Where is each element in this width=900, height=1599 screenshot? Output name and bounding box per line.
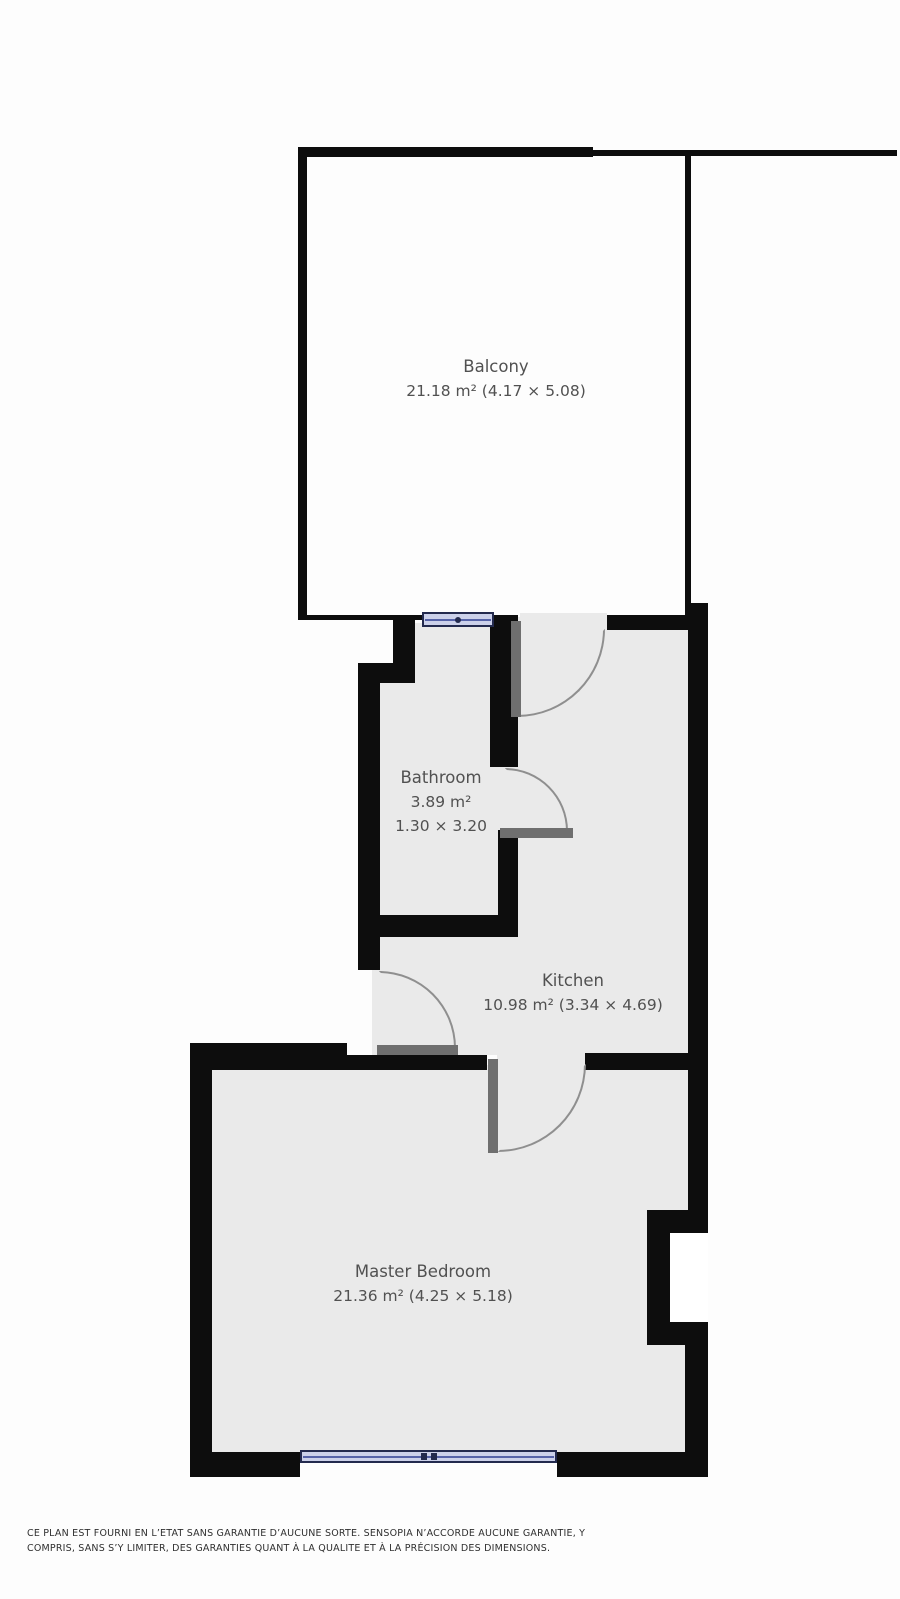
balcony-name: Balcony	[406, 355, 586, 379]
master-wall-right-upper	[688, 1070, 708, 1210]
room-label-balcony: Balcony 21.18 m² (4.17 × 5.08)	[406, 355, 586, 403]
floor-plan: Balcony 21.18 m² (4.17 × 5.08) Bathroom …	[0, 0, 900, 1599]
balcony-wall-top	[298, 147, 593, 157]
bathroom-floor-upper	[415, 623, 498, 685]
master-door-leaf	[488, 1059, 498, 1153]
master-notch-wall-top	[647, 1210, 708, 1233]
room-label-bathroom: Bathroom 3.89 m² 1.30 × 3.20	[395, 766, 487, 838]
bathroom-wall-bottom	[358, 915, 518, 937]
bathroom-step-wall-horizontal	[358, 663, 415, 683]
bathroom-window-handle-icon	[455, 617, 461, 623]
building-line-top	[590, 150, 897, 156]
master-notch-opening	[670, 1233, 708, 1322]
kitchen-name: Kitchen	[483, 969, 663, 993]
master-window-divider-right	[431, 1453, 437, 1460]
bathroom-dimensions: 1.30 × 3.20	[395, 814, 487, 838]
master-wall-top-right	[585, 1053, 708, 1070]
master-wall-bottom-right	[557, 1452, 708, 1477]
balcony-dimensions: 21.18 m² (4.17 × 5.08)	[406, 379, 586, 403]
disclaimer-line-1: CE PLAN EST FOURNI EN L’ETAT SANS GARANT…	[27, 1526, 585, 1541]
balcony-door-leaf	[511, 621, 521, 717]
bathroom-name: Bathroom	[395, 766, 487, 790]
kitchen-dimensions: 10.98 m² (3.34 × 4.69)	[483, 993, 663, 1017]
bathroom-wall-right-lower	[498, 830, 518, 937]
master-notch-wall-bottom	[647, 1322, 708, 1345]
bathroom-area: 3.89 m²	[395, 790, 487, 814]
master-bedroom-window	[300, 1450, 557, 1463]
balcony-doorway-gap	[520, 613, 607, 630]
kitchen-wall-top	[607, 615, 688, 630]
balcony-wall-right	[685, 153, 691, 615]
master-bedroom-name: Master Bedroom	[333, 1260, 513, 1284]
master-notch-wall-left	[647, 1233, 670, 1322]
master-wall-bottom-left	[190, 1452, 300, 1477]
master-wall-right-lower	[685, 1345, 708, 1452]
disclaimer-line-2: COMPRIS, SANS S’Y LIMITER, DES GARANTIES…	[27, 1541, 585, 1556]
master-wall-left	[190, 1043, 212, 1477]
master-wall-top-left	[190, 1043, 347, 1070]
master-bedroom-dimensions: 21.36 m² (4.25 × 5.18)	[333, 1284, 513, 1308]
master-window-divider-left	[421, 1453, 427, 1460]
room-label-kitchen: Kitchen 10.98 m² (3.34 × 4.69)	[483, 969, 663, 1017]
master-bedroom-floor	[212, 1065, 688, 1452]
bathroom-door-leaf	[500, 828, 573, 838]
hallway-door-leaf	[377, 1045, 458, 1055]
kitchen-wall-right	[688, 603, 708, 1070]
bathroom-window	[422, 612, 494, 627]
balcony-wall-left	[298, 147, 307, 620]
master-wall-top-mid	[347, 1055, 487, 1070]
disclaimer-text: CE PLAN EST FOURNI EN L’ETAT SANS GARANT…	[27, 1526, 585, 1556]
master-window-pane-line	[303, 1456, 554, 1458]
room-label-master-bedroom: Master Bedroom 21.36 m² (4.25 × 5.18)	[333, 1260, 513, 1308]
